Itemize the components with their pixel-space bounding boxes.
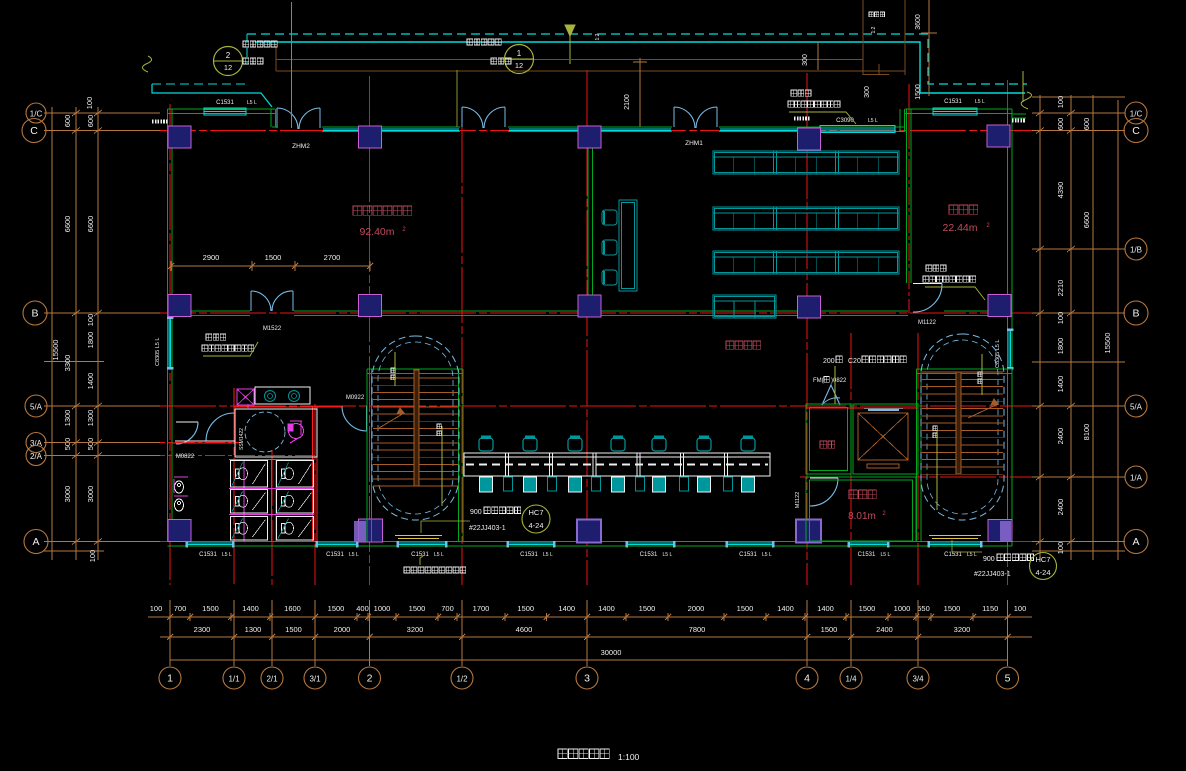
svg-text:3300: 3300 <box>63 355 72 372</box>
svg-text:2100: 2100 <box>624 94 631 110</box>
svg-text:12: 12 <box>224 63 232 72</box>
svg-text:1500: 1500 <box>409 604 426 613</box>
svg-text:12: 12 <box>515 61 523 70</box>
svg-text:L5 L: L5 L <box>222 552 232 558</box>
svg-text:500: 500 <box>86 438 95 451</box>
svg-text:2: 2 <box>367 673 373 685</box>
svg-text:3: 3 <box>584 673 590 685</box>
svg-text:2/A: 2/A <box>30 452 43 461</box>
svg-text:1500: 1500 <box>265 253 282 262</box>
svg-text:900: 900 <box>983 556 995 563</box>
svg-text:C1531: C1531 <box>326 552 344 558</box>
svg-text:100: 100 <box>150 604 163 613</box>
svg-text:100: 100 <box>1056 312 1065 325</box>
svg-text:A: A <box>1132 536 1139 548</box>
svg-text:1400: 1400 <box>1056 376 1065 393</box>
svg-text:1500: 1500 <box>737 604 754 613</box>
svg-text:C: C <box>1132 125 1140 137</box>
svg-text:2000: 2000 <box>334 625 351 634</box>
svg-text:1/1: 1/1 <box>228 675 240 684</box>
svg-text:100: 100 <box>86 314 95 327</box>
svg-text:1300: 1300 <box>245 625 262 634</box>
svg-text:SSM1422: SSM1422 <box>239 428 245 450</box>
svg-text:1500: 1500 <box>328 604 345 613</box>
svg-text:1500: 1500 <box>915 84 922 100</box>
svg-text:7800: 7800 <box>689 625 706 634</box>
svg-text:1:100: 1:100 <box>618 752 640 762</box>
svg-text:1500: 1500 <box>639 604 656 613</box>
svg-text:600: 600 <box>1056 118 1065 131</box>
svg-text:4600: 4600 <box>516 625 533 634</box>
svg-text:15500: 15500 <box>1103 333 1112 354</box>
svg-text:ZHM1: ZHM1 <box>685 140 703 147</box>
svg-text:3/1: 3/1 <box>309 675 321 684</box>
svg-text:3000: 3000 <box>86 486 95 503</box>
svg-text:100: 100 <box>1056 542 1065 555</box>
svg-text:1/B: 1/B <box>1130 246 1142 255</box>
svg-text:1400: 1400 <box>777 604 794 613</box>
svg-text:300: 300 <box>802 54 809 66</box>
svg-text:8.01m: 8.01m <box>848 511 876 522</box>
svg-text:L5 L: L5 L <box>762 552 772 558</box>
svg-text:600: 600 <box>63 115 72 128</box>
svg-text:C: C <box>30 125 38 137</box>
svg-text:2700: 2700 <box>324 253 341 262</box>
svg-text:1500: 1500 <box>944 604 961 613</box>
svg-text:3/4: 3/4 <box>912 675 924 684</box>
svg-text:3200: 3200 <box>407 625 424 634</box>
svg-text:2300: 2300 <box>194 625 211 634</box>
svg-text:2/1: 2/1 <box>266 675 278 684</box>
svg-text:L5 L: L5 L <box>975 99 985 105</box>
svg-text:92.40m: 92.40m <box>359 226 394 238</box>
svg-text:6600: 6600 <box>1082 212 1091 229</box>
svg-text:C1531: C1531 <box>199 552 217 558</box>
svg-text:)0822: )0822 <box>831 378 847 384</box>
svg-text:2900: 2900 <box>203 253 220 262</box>
svg-text:1: 1 <box>517 49 522 58</box>
svg-text:2: 2 <box>226 51 231 60</box>
svg-text:100: 100 <box>85 97 94 110</box>
svg-text:C1531: C1531 <box>858 552 876 558</box>
svg-text:M0922: M0922 <box>346 395 365 401</box>
svg-text:ZHM2: ZHM2 <box>292 143 310 150</box>
svg-text:1800: 1800 <box>1056 338 1065 355</box>
svg-text:C1531: C1531 <box>411 552 429 558</box>
svg-text:22.44m: 22.44m <box>942 222 977 234</box>
svg-text:1400: 1400 <box>86 373 95 390</box>
svg-text:5/A: 5/A <box>30 403 43 412</box>
svg-text:1300: 1300 <box>63 410 72 427</box>
svg-text:400: 400 <box>356 604 369 613</box>
svg-text:500: 500 <box>63 438 72 451</box>
svg-text:1600: 1600 <box>284 604 301 613</box>
svg-text:1/4: 1/4 <box>845 675 857 684</box>
svg-text:M1122: M1122 <box>795 492 801 508</box>
svg-text:2400: 2400 <box>876 625 893 634</box>
svg-text:B: B <box>31 308 38 320</box>
svg-text:1400: 1400 <box>558 604 575 613</box>
svg-text:L5 L: L5 L <box>543 552 553 558</box>
svg-text:30000: 30000 <box>601 648 622 657</box>
svg-text:1300: 1300 <box>86 410 95 427</box>
svg-text:C1531: C1531 <box>216 100 234 106</box>
svg-text:1/A: 1/A <box>1130 474 1143 483</box>
svg-text:1400: 1400 <box>598 604 615 613</box>
svg-text:1500: 1500 <box>202 604 219 613</box>
svg-text:C1531: C1531 <box>640 552 658 558</box>
svg-text:FM(: FM( <box>813 378 824 384</box>
svg-text:C1531: C1531 <box>944 99 962 105</box>
svg-text:1500: 1500 <box>517 604 534 613</box>
svg-text:4: 4 <box>804 673 810 685</box>
svg-text:1800: 1800 <box>86 332 95 349</box>
svg-text:2400: 2400 <box>1056 499 1065 516</box>
svg-text:HC7: HC7 <box>528 508 543 517</box>
svg-text:1500: 1500 <box>285 625 302 634</box>
svg-text:L5 L: L5 L <box>967 552 977 558</box>
svg-text:1500: 1500 <box>859 604 876 613</box>
svg-text:L5 L: L5 L <box>434 552 444 558</box>
svg-text:3600: 3600 <box>915 14 922 30</box>
svg-text:1:2: 1:2 <box>595 33 601 40</box>
svg-text:C1531: C1531 <box>739 552 757 558</box>
svg-text:2400: 2400 <box>1056 428 1065 445</box>
svg-text:600: 600 <box>1082 118 1091 131</box>
svg-text:1/C: 1/C <box>30 110 43 119</box>
svg-text:5: 5 <box>1005 673 1011 685</box>
svg-text:4390: 4390 <box>1056 182 1065 199</box>
svg-text:1: 1 <box>167 673 173 685</box>
svg-text:1150: 1150 <box>982 604 998 613</box>
svg-text:HC7: HC7 <box>1035 555 1050 564</box>
svg-text:L5 L: L5 L <box>663 552 673 558</box>
svg-text:1700: 1700 <box>473 604 490 613</box>
svg-text:1/C: 1/C <box>1130 110 1143 119</box>
svg-text:#22JJ403-1: #22JJ403-1 <box>469 525 506 532</box>
svg-text:1000: 1000 <box>374 604 391 613</box>
svg-text:M1522: M1522 <box>263 326 282 332</box>
svg-text:3000: 3000 <box>63 486 72 503</box>
svg-text:C1531: C1531 <box>944 552 962 558</box>
svg-text:L5 L: L5 L <box>881 552 891 558</box>
svg-text:700: 700 <box>174 604 187 613</box>
svg-text:6600: 6600 <box>86 216 95 233</box>
svg-text:8100: 8100 <box>1082 424 1091 441</box>
svg-text:1000: 1000 <box>894 604 911 613</box>
svg-text:C8305 L5 L: C8305 L5 L <box>155 338 161 366</box>
svg-text:B: B <box>1132 308 1139 320</box>
svg-text:M0822: M0822 <box>176 454 195 460</box>
svg-text:6600: 6600 <box>63 216 72 233</box>
svg-text:600: 600 <box>86 115 95 128</box>
svg-text:C20: C20 <box>848 358 861 365</box>
svg-text:1400: 1400 <box>242 604 259 613</box>
svg-text:900: 900 <box>470 509 482 516</box>
svg-text:200: 200 <box>823 358 835 365</box>
svg-text:1400: 1400 <box>817 604 834 613</box>
svg-text:C1531: C1531 <box>520 552 538 558</box>
svg-text:L5 L: L5 L <box>247 100 257 106</box>
svg-text:5/A: 5/A <box>1130 403 1143 412</box>
svg-text:1500: 1500 <box>821 625 838 634</box>
svg-text:3200: 3200 <box>954 625 971 634</box>
svg-text:4-24: 4-24 <box>528 521 543 530</box>
svg-text:2000: 2000 <box>688 604 705 613</box>
svg-text:100: 100 <box>1056 96 1065 109</box>
svg-text:L5 L: L5 L <box>349 552 359 558</box>
svg-text:4-24: 4-24 <box>1035 568 1050 577</box>
svg-text:A: A <box>32 536 39 548</box>
svg-text:100: 100 <box>88 550 97 563</box>
svg-text:#22JJ403-1: #22JJ403-1 <box>974 571 1011 578</box>
svg-text:550: 550 <box>917 604 930 613</box>
svg-text:L5 L: L5 L <box>868 118 878 124</box>
svg-text:M1122: M1122 <box>918 320 937 326</box>
svg-text:1:2: 1:2 <box>871 26 877 33</box>
svg-text:15500: 15500 <box>51 340 60 361</box>
svg-text:700: 700 <box>441 604 454 613</box>
svg-text:2210: 2210 <box>1056 280 1065 297</box>
svg-text:1/2: 1/2 <box>456 675 468 684</box>
svg-text:300: 300 <box>864 86 871 98</box>
svg-text:100: 100 <box>1014 604 1027 613</box>
